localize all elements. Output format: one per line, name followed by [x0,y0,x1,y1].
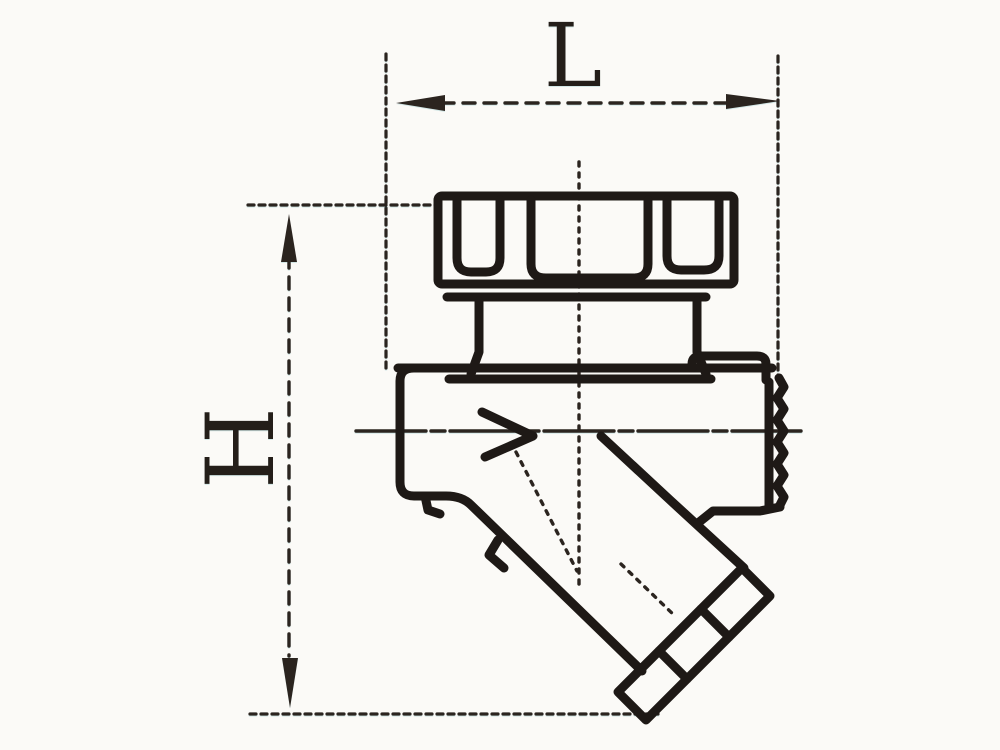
h-dimension-label: H [187,407,296,489]
l-dimension-label: L [544,4,602,107]
technical-drawing-canvas: L H [0,0,1000,750]
valve-drawing: L H [0,0,1000,750]
